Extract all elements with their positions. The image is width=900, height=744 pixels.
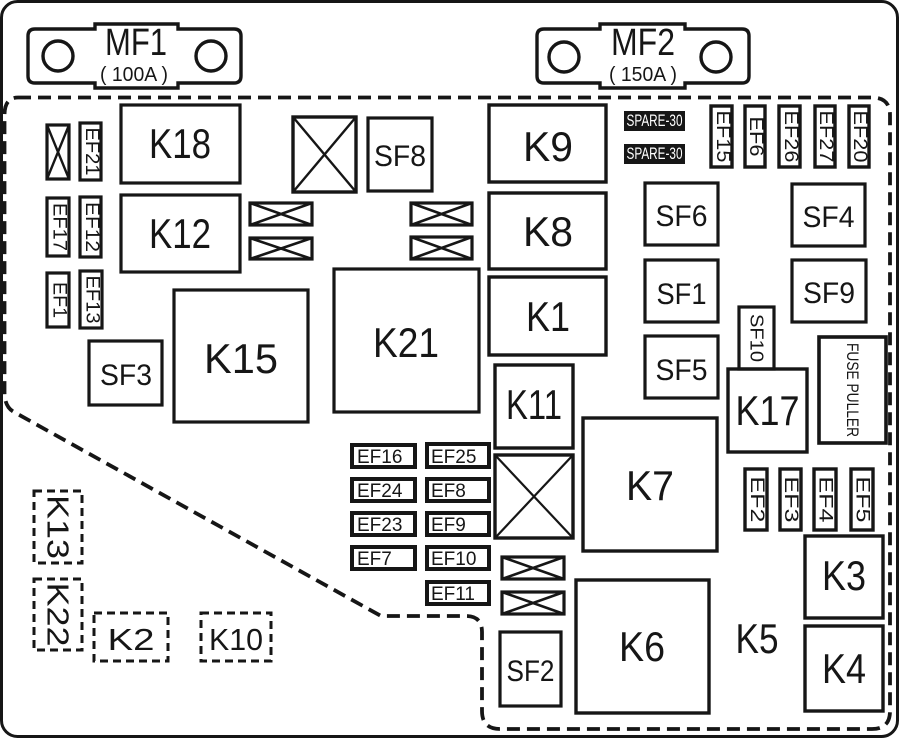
svg-text:EF8: EF8 bbox=[431, 481, 466, 502]
svg-text:K21: K21 bbox=[373, 319, 439, 366]
svg-text:K4: K4 bbox=[822, 645, 866, 692]
svg-text:K10: K10 bbox=[209, 622, 263, 657]
svg-text:K15: K15 bbox=[204, 335, 278, 382]
svg-text:EF5: EF5 bbox=[852, 477, 873, 523]
svg-text:SF2: SF2 bbox=[507, 655, 555, 688]
svg-text:EF6: EF6 bbox=[745, 117, 766, 157]
svg-text:K18: K18 bbox=[149, 120, 211, 167]
svg-text:EF11: EF11 bbox=[431, 584, 475, 605]
svg-text:K2: K2 bbox=[108, 622, 155, 657]
svg-text:( 150A ): ( 150A ) bbox=[609, 64, 677, 86]
svg-text:EF12: EF12 bbox=[81, 202, 102, 252]
svg-text:EF25: EF25 bbox=[431, 447, 476, 468]
svg-text:EF10: EF10 bbox=[431, 549, 476, 570]
svg-text:EF20: EF20 bbox=[849, 111, 870, 163]
svg-text:K7: K7 bbox=[626, 462, 674, 509]
svg-text:EF13: EF13 bbox=[82, 276, 103, 324]
svg-text:K1: K1 bbox=[526, 293, 570, 340]
svg-text:SPARE-30: SPARE-30 bbox=[627, 111, 683, 130]
svg-text:EF7: EF7 bbox=[357, 549, 392, 570]
svg-text:K12: K12 bbox=[149, 210, 211, 257]
svg-text:EF3: EF3 bbox=[780, 477, 801, 523]
svg-text:K5: K5 bbox=[736, 615, 779, 662]
svg-text:SF4: SF4 bbox=[803, 201, 855, 234]
svg-text:K17: K17 bbox=[736, 387, 800, 434]
svg-text:EF16: EF16 bbox=[357, 447, 402, 468]
svg-text:K22: K22 bbox=[41, 583, 76, 647]
svg-text:EF21: EF21 bbox=[81, 128, 102, 176]
svg-text:K13: K13 bbox=[41, 495, 76, 559]
svg-text:K6: K6 bbox=[619, 623, 665, 670]
svg-text:K11: K11 bbox=[506, 381, 562, 428]
svg-text:SF10: SF10 bbox=[747, 314, 767, 362]
svg-text:SF5: SF5 bbox=[656, 354, 708, 387]
svg-text:K3: K3 bbox=[822, 552, 866, 599]
svg-text:SPARE-30: SPARE-30 bbox=[627, 144, 683, 163]
svg-text:SF3: SF3 bbox=[100, 359, 152, 392]
svg-text:EF17: EF17 bbox=[49, 203, 70, 251]
svg-text:MF2: MF2 bbox=[611, 22, 675, 64]
svg-text:EF15: EF15 bbox=[712, 111, 733, 163]
svg-text:EF27: EF27 bbox=[815, 111, 836, 163]
svg-text:SF8: SF8 bbox=[374, 140, 426, 173]
svg-text:K8: K8 bbox=[523, 208, 573, 255]
svg-text:SF1: SF1 bbox=[657, 278, 707, 311]
svg-text:EF24: EF24 bbox=[357, 481, 403, 502]
svg-text:SF6: SF6 bbox=[656, 200, 708, 233]
svg-text:SF9: SF9 bbox=[803, 277, 855, 310]
svg-text:MF1: MF1 bbox=[105, 22, 167, 64]
svg-text:EF2: EF2 bbox=[746, 477, 767, 523]
svg-text:EF4: EF4 bbox=[815, 477, 836, 524]
svg-text:EF9: EF9 bbox=[431, 515, 466, 536]
svg-text:K9: K9 bbox=[523, 123, 573, 170]
svg-text:EF1: EF1 bbox=[49, 282, 70, 318]
svg-text:( 100A ): ( 100A ) bbox=[100, 64, 168, 86]
svg-text:EF26: EF26 bbox=[780, 111, 801, 163]
svg-text:EF23: EF23 bbox=[357, 515, 402, 536]
svg-text:FUSE PULLER: FUSE PULLER bbox=[843, 343, 862, 437]
